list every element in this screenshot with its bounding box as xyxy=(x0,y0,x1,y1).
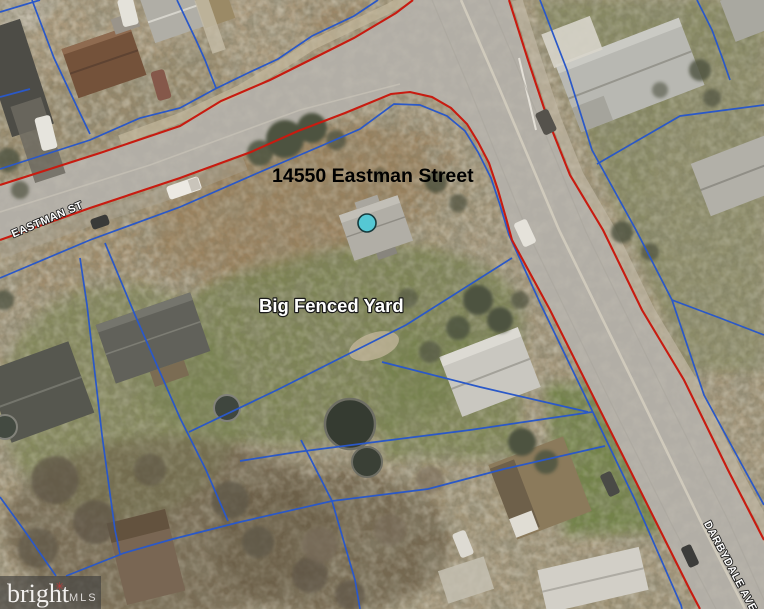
svg-text:14550 Eastman Street: 14550 Eastman Street xyxy=(272,165,474,187)
svg-text:Big Fenced Yard: Big Fenced Yard xyxy=(259,295,404,316)
svg-text:✳: ✳ xyxy=(55,581,64,593)
svg-text:MLS: MLS xyxy=(69,592,98,604)
